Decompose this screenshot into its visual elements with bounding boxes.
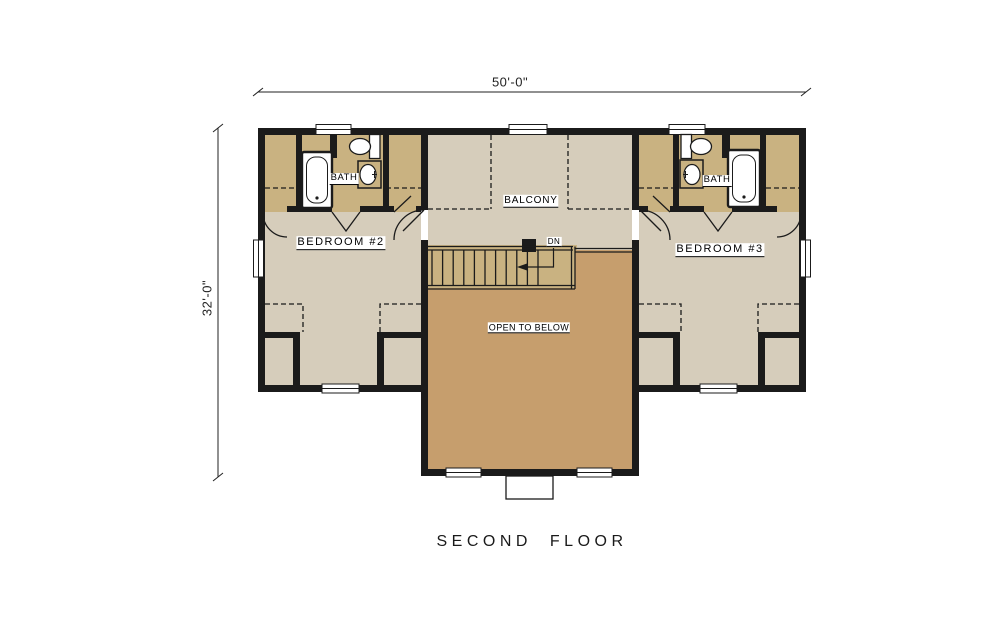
bedroom3-kneewall-left-v — [673, 332, 680, 385]
open-to-below-main — [428, 288, 632, 469]
bedroom2-kneewall-left-v — [293, 332, 300, 385]
floor-plan-canvas: 50'-0" 32'-0" BATH BATH BEDROOM #2 BEDRO… — [0, 0, 1004, 630]
toilet-left-bowl — [350, 139, 371, 155]
bath-right-label: BATH — [703, 175, 732, 187]
bedroom3-kneewall-right-h — [765, 332, 799, 338]
balcony-floor — [428, 135, 632, 250]
center-left-wall-upper — [421, 128, 428, 210]
bath2-front-wall-b — [360, 206, 394, 212]
stairs-floor — [428, 245, 577, 290]
balcony-label: BALCONY — [503, 195, 558, 208]
open-to-below-label: OPEN TO BELOW — [488, 322, 570, 333]
drawing-title: SECOND FLOOR — [436, 533, 627, 551]
center-right-wall-lower — [632, 240, 639, 476]
bedroom3-kneewall-right-v — [758, 332, 765, 385]
entry-stoop-outline — [506, 476, 553, 499]
stairs-down-label: DN — [547, 237, 562, 247]
open-to-below-upper — [575, 250, 632, 290]
overall-width-dimension: 50'-0" — [492, 75, 528, 90]
bathtub-left-drain — [315, 196, 318, 199]
center-left-wall-lower — [421, 240, 428, 476]
bedroom2-kneewall-right-h — [384, 332, 421, 338]
overall-depth-dimension: 32'-0" — [200, 280, 215, 316]
toilet-right-bowl — [691, 139, 712, 155]
bathtub-right-drain — [742, 195, 745, 198]
bath-left-label: BATH — [330, 173, 359, 185]
bath3-left-partition — [673, 135, 679, 212]
bedroom2-kneewall-right-v — [377, 332, 384, 385]
bedroom3-floor — [639, 212, 799, 385]
bedroom2-label: BEDROOM #2 — [296, 236, 385, 250]
bath3-front-wall-b — [670, 206, 704, 212]
center-right-wall-upper — [632, 128, 639, 210]
bedroom3-kneewall-left-h — [639, 332, 673, 338]
bedroom2-kneewall-left-h — [265, 332, 293, 338]
bath2-right-partition — [383, 135, 389, 212]
bedroom3-label: BEDROOM #3 — [675, 243, 764, 257]
